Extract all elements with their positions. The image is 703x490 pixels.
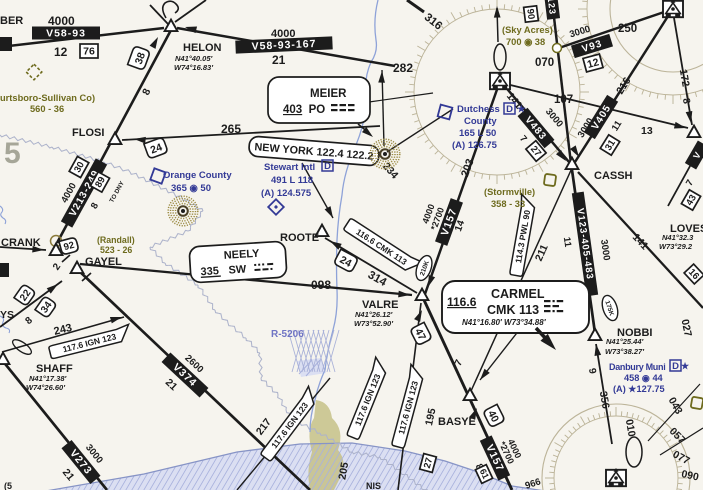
svg-text:282: 282 bbox=[393, 61, 413, 75]
svg-text:YS: YS bbox=[0, 309, 14, 321]
svg-text:523 - 26: 523 - 26 bbox=[100, 245, 132, 255]
svg-text:N41°26.12′: N41°26.12′ bbox=[355, 310, 394, 319]
svg-text:12: 12 bbox=[54, 45, 68, 59]
svg-text:(A) ★127.75: (A) ★127.75 bbox=[613, 384, 665, 394]
svg-text:Stewart Intl: Stewart Intl bbox=[264, 162, 315, 173]
svg-text:N41°25.44′: N41°25.44′ bbox=[606, 337, 645, 346]
svg-text:(Stormville): (Stormville) bbox=[484, 187, 535, 197]
svg-text:5: 5 bbox=[4, 137, 21, 170]
svg-text:W73°29.2: W73°29.2 bbox=[659, 242, 693, 251]
svg-text:458 ◉ 44: 458 ◉ 44 bbox=[624, 373, 664, 383]
svg-text:BASYE: BASYE bbox=[438, 416, 476, 428]
svg-text:403 PO: 403 PO bbox=[283, 104, 325, 116]
svg-text:(A) 126.75: (A) 126.75 bbox=[452, 140, 498, 151]
svg-text:4000: 4000 bbox=[48, 14, 75, 28]
svg-text:urtsboro-Sullivan Co): urtsboro-Sullivan Co) bbox=[0, 93, 95, 103]
svg-text:098: 098 bbox=[311, 278, 331, 292]
svg-text:560 - 36: 560 - 36 bbox=[30, 104, 64, 114]
svg-text:070: 070 bbox=[535, 57, 554, 69]
svg-text:N41°16.80′ W73°34.88′: N41°16.80′ W73°34.88′ bbox=[462, 318, 547, 327]
svg-text:(A) 124.575: (A) 124.575 bbox=[261, 188, 312, 199]
svg-text:NIS: NIS bbox=[366, 481, 381, 490]
svg-text:D: D bbox=[324, 161, 331, 172]
svg-text:107: 107 bbox=[554, 94, 573, 106]
svg-text:W74°26.60′: W74°26.60′ bbox=[26, 383, 66, 392]
svg-text:N41°40.05′: N41°40.05′ bbox=[175, 54, 214, 63]
svg-text:NEELY: NEELY bbox=[223, 248, 260, 262]
svg-text:76: 76 bbox=[83, 46, 95, 58]
svg-text:W73°52.90′: W73°52.90′ bbox=[354, 319, 394, 328]
svg-text:W74°16.83′: W74°16.83′ bbox=[174, 63, 214, 72]
svg-text:ROOTE: ROOTE bbox=[280, 232, 319, 244]
svg-text:BER: BER bbox=[0, 15, 23, 27]
svg-text:116.6: 116.6 bbox=[447, 295, 477, 309]
svg-text:491 L 118: 491 L 118 bbox=[271, 175, 313, 186]
svg-text:(Sky Acres): (Sky Acres) bbox=[502, 25, 553, 35]
svg-text:CMK 113: CMK 113 bbox=[487, 303, 539, 317]
svg-text:CARMEL: CARMEL bbox=[491, 287, 545, 301]
svg-text:SW: SW bbox=[228, 263, 247, 276]
svg-text:21: 21 bbox=[272, 53, 286, 67]
svg-text:D: D bbox=[506, 104, 513, 115]
svg-text:CASSH: CASSH bbox=[594, 170, 633, 182]
svg-text:358 - 33: 358 - 33 bbox=[491, 199, 525, 209]
svg-text:4000: 4000 bbox=[271, 28, 295, 40]
svg-text:250: 250 bbox=[618, 23, 637, 35]
svg-text:365 ◉ 50: 365 ◉ 50 bbox=[171, 183, 211, 194]
svg-text:GAYEL: GAYEL bbox=[85, 256, 122, 268]
svg-text:Danbury Muni: Danbury Muni bbox=[609, 362, 665, 372]
svg-text:13: 13 bbox=[641, 125, 653, 137]
svg-text:D: D bbox=[672, 361, 679, 372]
svg-text:265: 265 bbox=[221, 122, 241, 136]
svg-text:W73°38.27′: W73°38.27′ bbox=[605, 347, 645, 356]
svg-text:CRANK: CRANK bbox=[1, 237, 41, 249]
svg-text:165 L 50: 165 L 50 bbox=[459, 128, 496, 139]
svg-text:★: ★ bbox=[517, 104, 526, 115]
svg-text:N41°17.38′: N41°17.38′ bbox=[29, 374, 68, 383]
svg-text:V58-93: V58-93 bbox=[46, 27, 86, 39]
svg-text:Orange County: Orange County bbox=[163, 170, 232, 181]
svg-text:★: ★ bbox=[680, 361, 690, 371]
svg-text:Dutchess: Dutchess bbox=[457, 104, 500, 115]
svg-text:County: County bbox=[464, 116, 497, 127]
svg-text:90: 90 bbox=[524, 8, 536, 20]
svg-text:HELON: HELON bbox=[183, 42, 222, 54]
svg-text:N41°32.3: N41°32.3 bbox=[662, 233, 694, 242]
svg-text:MEIER: MEIER bbox=[310, 88, 347, 100]
svg-text:FLOSI: FLOSI bbox=[72, 127, 104, 139]
svg-text:700 ◉ 38: 700 ◉ 38 bbox=[506, 37, 545, 47]
svg-text:R-5206: R-5206 bbox=[271, 329, 304, 340]
svg-text:(5: (5 bbox=[4, 481, 12, 490]
svg-text:(Randall): (Randall) bbox=[97, 235, 135, 245]
